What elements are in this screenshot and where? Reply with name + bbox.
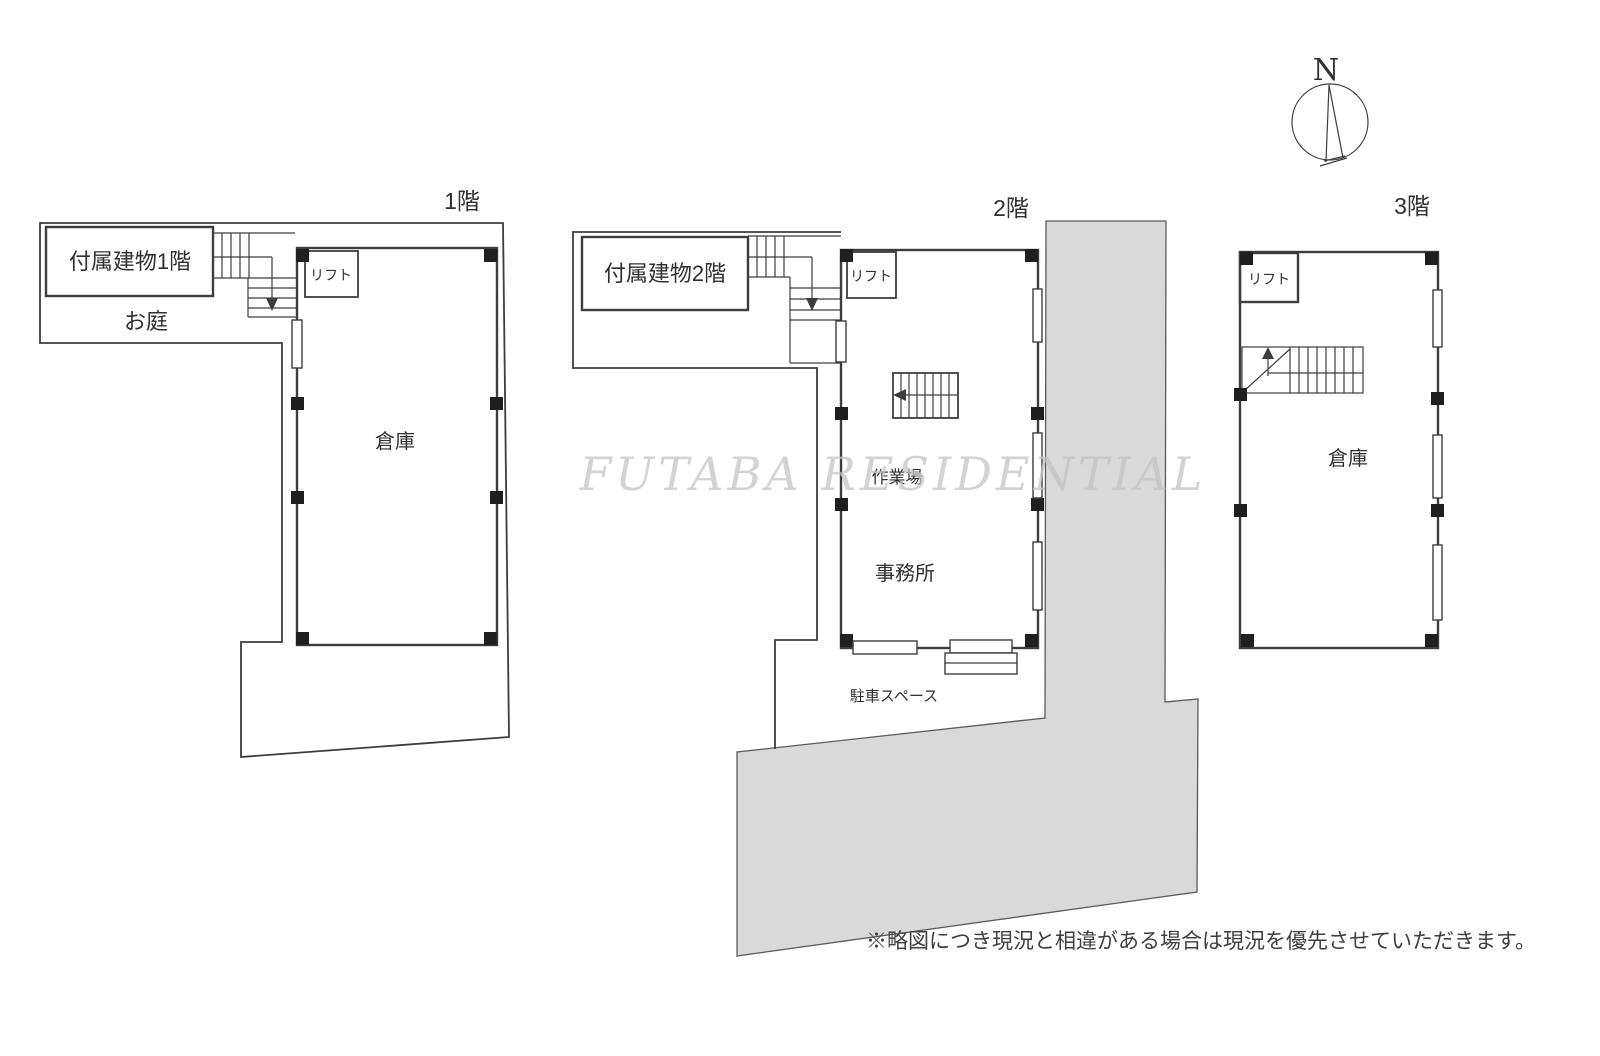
lift-label-2f: リフト [850, 268, 892, 284]
compass-circle [1292, 84, 1368, 160]
staircase-3f [1242, 347, 1363, 393]
pillar [296, 632, 309, 645]
pillar [296, 249, 309, 262]
warehouse-label-3f: 倉庫 [1328, 447, 1368, 470]
north-compass-icon: N [1292, 53, 1368, 166]
window [1433, 290, 1442, 347]
pillar [291, 397, 304, 410]
lift-label-3f: リフト [1248, 271, 1290, 287]
watermark-text: FUTABA RESIDENTIAL [579, 447, 1207, 501]
interior-staircase-2f [893, 373, 958, 418]
floorplan-page: 1階 付属建物1階 お庭 リフト [0, 0, 1600, 1056]
garden-label-1f: お庭 [124, 309, 168, 334]
warehouse-label-1f: 倉庫 [375, 430, 415, 453]
window [836, 321, 846, 362]
disclaimer-note: ※略図につき現況と相違がある場合は現況を優先させていただきます。 [866, 930, 1536, 953]
staircase-2f [748, 236, 841, 363]
staircase-1f [213, 233, 297, 317]
compass-north-letter: N [1313, 53, 1339, 88]
pillar [840, 249, 853, 262]
stair-down-arrow-icon [806, 298, 818, 311]
pillar [484, 632, 497, 645]
lift-label-1f: リフト [310, 267, 352, 283]
window [950, 640, 1012, 653]
stair-outline [1242, 347, 1363, 393]
pillar [1425, 634, 1438, 647]
pillar [484, 249, 497, 262]
stair-left-arrow-icon [893, 389, 906, 401]
pillar [1431, 392, 1444, 405]
pillar [291, 491, 304, 504]
pillar [1431, 504, 1444, 517]
stair-down-arrow-icon [266, 298, 278, 311]
floor-title-3f: 3階 [1394, 193, 1430, 219]
window [1433, 545, 1442, 620]
floor-title-1f: 1階 [444, 188, 480, 214]
pillar [1025, 249, 1038, 262]
pillar [490, 397, 503, 410]
pillar [840, 634, 853, 647]
compass-needle [1326, 85, 1329, 162]
window [1033, 542, 1042, 610]
pillar [1025, 634, 1038, 647]
pillar [1234, 504, 1247, 517]
floor-title-2f: 2階 [993, 195, 1029, 221]
annex-label-2f: 付属建物2階 [604, 261, 726, 286]
windows-3f [1433, 290, 1442, 620]
floor-plan-1f: 1階 付属建物1階 お庭 リフト [40, 188, 509, 757]
parking-label-2f: 駐車スペース [850, 688, 938, 705]
pillar [1241, 634, 1254, 647]
office-label-2f: 事務所 [875, 562, 935, 585]
pillar [490, 491, 503, 504]
window [853, 641, 917, 654]
floor-plan-3f: 3階 リフト [1234, 193, 1444, 648]
road-area [737, 221, 1198, 956]
window [1433, 435, 1442, 498]
compass-needle [1329, 85, 1343, 158]
pillar [1240, 252, 1253, 265]
annex-label-1f: 付属建物1階 [69, 249, 191, 274]
floorplan-canvas: 1階 付属建物1階 お庭 リフト [0, 0, 1600, 1056]
pillar [1425, 252, 1438, 265]
pillar [1031, 407, 1044, 420]
pillar [835, 407, 848, 420]
entrance-steps-2f [945, 653, 1017, 674]
window [292, 320, 302, 368]
pillar [1234, 388, 1247, 401]
window [1033, 289, 1042, 342]
stair-up-arrow-icon [1262, 347, 1274, 359]
